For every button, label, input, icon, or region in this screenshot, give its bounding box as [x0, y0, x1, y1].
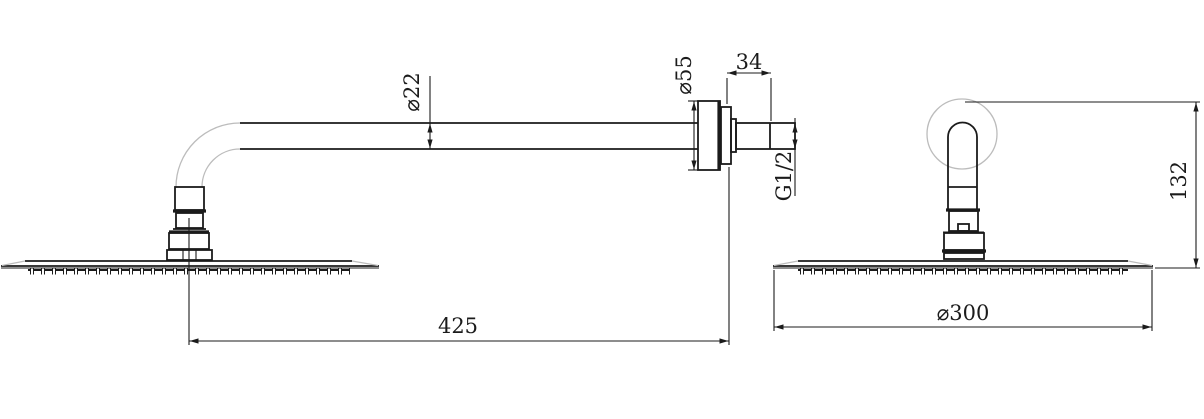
- wall-flange-circle: [927, 99, 997, 169]
- dim-label-arm-length: 425: [438, 314, 478, 338]
- dim-thread-size: G1/2: [772, 118, 798, 201]
- shower-head-side: [1, 261, 379, 275]
- dim-arm-length: 425: [189, 167, 729, 345]
- dim-label-flange-depth: 34: [736, 50, 763, 74]
- wall-pipe-stub: [736, 123, 795, 149]
- dim-label-flange-diameter: ⌀55: [672, 55, 696, 94]
- nozzle-band-front: [798, 269, 1128, 275]
- technical-drawing-canvas: ⌀22 ⌀55 34 G1/2: [0, 0, 1204, 419]
- dim-label-head-diameter: ⌀300: [937, 301, 990, 325]
- dim-label-drop-height: 132: [1167, 161, 1191, 201]
- front-view: ⌀300 132: [773, 99, 1200, 331]
- dim-label-arm-diameter: ⌀22: [400, 72, 424, 111]
- dim-arm-diameter: ⌀22: [400, 72, 433, 149]
- shower-head-front: [773, 261, 1153, 275]
- dim-flange-diameter: ⌀55: [672, 55, 698, 170]
- dim-head-diameter: ⌀300: [774, 270, 1152, 331]
- dim-flange-depth: 34: [727, 50, 771, 121]
- shower-arm-drawing: ⌀22 ⌀55 34 G1/2: [0, 0, 1204, 419]
- dim-drop-height: 132: [965, 102, 1200, 268]
- wall-flange: [698, 101, 736, 170]
- dim-label-thread-size: G1/2: [772, 151, 796, 202]
- side-view: ⌀22 ⌀55 34 G1/2: [1, 50, 798, 345]
- arm-head-connector-front: [942, 211, 986, 259]
- shower-arm-bend: [176, 123, 240, 187]
- shower-arm-tube: [240, 123, 698, 149]
